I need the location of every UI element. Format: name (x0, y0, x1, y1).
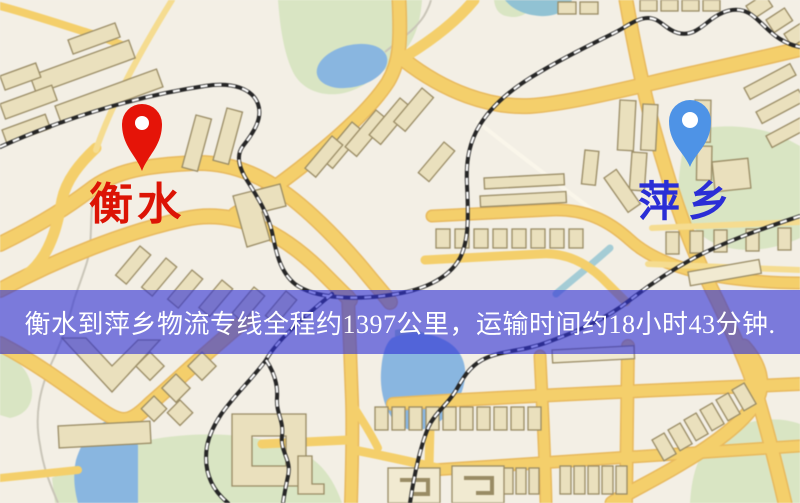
markers-overlay: 衡水 萍乡 (0, 0, 800, 503)
origin-city-label: 衡水 (89, 179, 185, 230)
destination-pin-shape (669, 100, 711, 167)
origin-pin-shape (122, 104, 162, 171)
destination-pin-hole (682, 112, 698, 128)
destination-city-label: 萍乡 (638, 177, 738, 226)
destination-marker-pin[interactable] (669, 100, 711, 167)
route-info-text: 衡水到萍乡物流专线全程约1397公里，运输时间约18小时43分钟. (24, 304, 775, 341)
logistics-route-map: 衡水 萍乡 衡水到萍乡物流专线全程约1397公里，运输时间约18小时43分钟. (0, 0, 800, 503)
route-info-banner: 衡水到萍乡物流专线全程约1397公里，运输时间约18小时43分钟. (0, 290, 800, 354)
origin-pin-hole (135, 116, 149, 130)
origin-marker-pin[interactable] (122, 104, 162, 171)
